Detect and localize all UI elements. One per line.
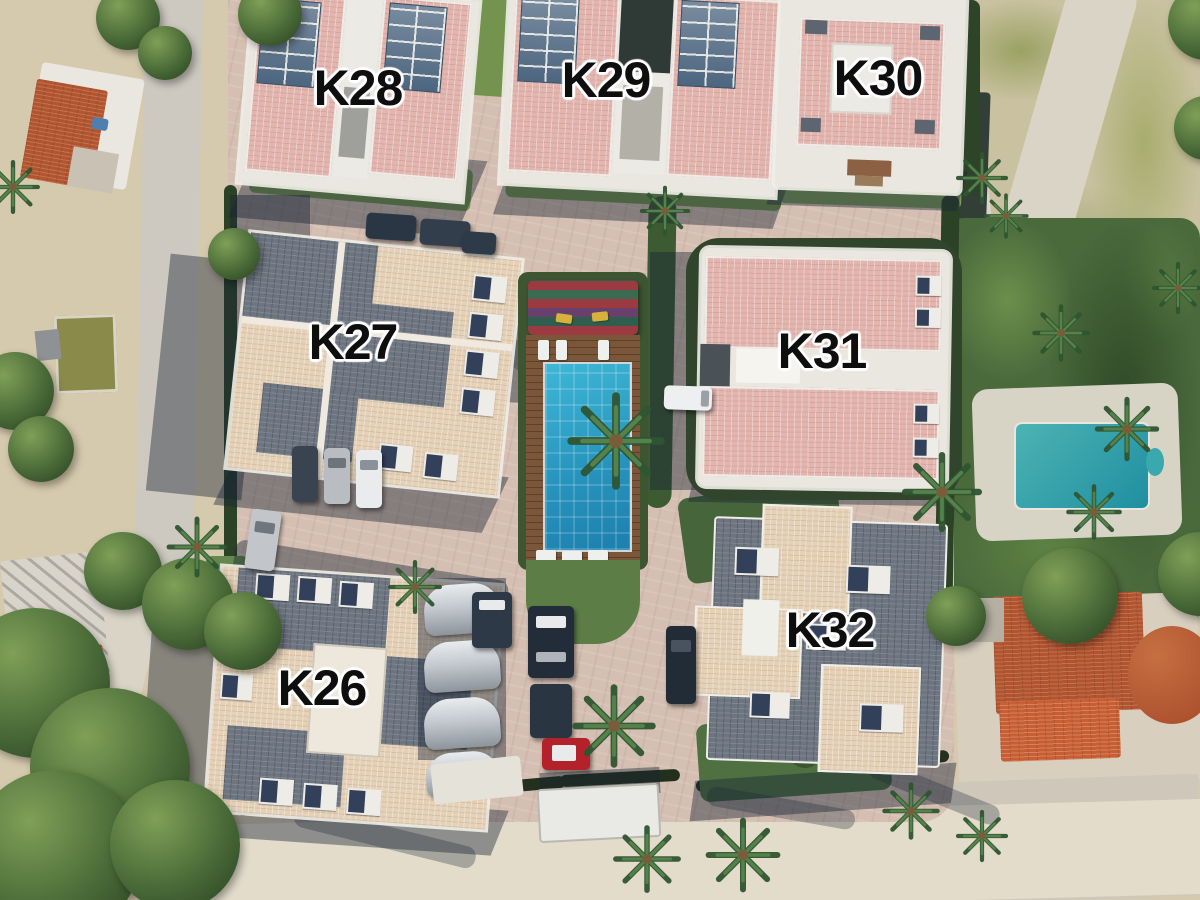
k27-dormer-2 — [467, 312, 504, 341]
tree — [138, 26, 192, 80]
car-dark-east-road — [666, 626, 696, 704]
k27-dormer-5 — [377, 443, 414, 472]
k32-skylight-2 — [846, 565, 891, 595]
car-silver-west — [324, 448, 350, 504]
k27-dormer-4 — [459, 387, 496, 416]
k32-skylight-3 — [749, 691, 790, 718]
pergola — [528, 280, 638, 335]
tree — [208, 228, 260, 280]
palm-tree — [566, 678, 662, 774]
k26-dormer-2 — [297, 576, 333, 604]
palm-tree — [560, 385, 672, 497]
k29-solar-panels-right — [677, 0, 739, 89]
k30-entrance-steps — [855, 176, 883, 187]
neighbor-house-topleft-pool-float — [91, 117, 109, 132]
palm-tree — [700, 812, 786, 898]
car-dark-center-1 — [472, 592, 512, 648]
suv-dark-center — [528, 606, 574, 678]
building-label-k32: K32 — [786, 601, 875, 659]
palm-tree — [980, 190, 1032, 242]
neighbor-house-topleft-patio — [67, 146, 119, 193]
k31-dormer-1 — [915, 276, 941, 296]
carport-roof-3 — [422, 695, 501, 750]
palm-tree — [896, 446, 988, 538]
building-label-k26: K26 — [278, 659, 367, 717]
tree — [8, 416, 74, 482]
pergola-lounger-2 — [592, 311, 609, 322]
building-label-k27: K27 — [309, 313, 398, 371]
palm-tree — [384, 556, 446, 618]
k32-skylight-1 — [734, 547, 779, 577]
tree — [204, 592, 282, 670]
k30-entrance-porch — [847, 159, 892, 177]
k30-vent-1 — [805, 20, 827, 35]
car-dark-row-1 — [365, 212, 417, 241]
lounger-top-2 — [556, 340, 567, 360]
palm-tree — [636, 182, 694, 240]
grey-shed — [34, 329, 61, 361]
k30-vent-4 — [915, 120, 935, 135]
k32-center-court — [741, 599, 779, 656]
k31-dormer-2 — [915, 308, 941, 328]
palm-tree — [878, 778, 944, 844]
tree — [1022, 548, 1118, 644]
k26-dormer-5 — [220, 673, 254, 701]
palm-tree — [162, 512, 232, 582]
k31-mid-shadow — [700, 344, 731, 387]
k26-dormer-3 — [338, 581, 374, 609]
palm-tree — [1062, 480, 1126, 544]
car-white-west — [356, 450, 382, 508]
k26-dormer-7 — [302, 783, 338, 811]
k30-vent-3 — [801, 118, 821, 133]
k27-dormer-1 — [471, 274, 508, 303]
k27-dormer-3 — [463, 350, 500, 379]
palm-tree — [952, 806, 1012, 866]
palm-tree — [0, 156, 44, 218]
building-label-k31: K31 — [778, 322, 867, 380]
lounger-top-1 — [538, 340, 549, 360]
tree — [110, 780, 240, 900]
aerial-site-plan: K28 K29 K30 K27 K31 K26 K32 — [0, 0, 1200, 900]
green-roof-shed — [54, 314, 119, 394]
building-label-k30: K30 — [834, 49, 923, 107]
palm-tree — [608, 820, 686, 898]
palm-tree — [1148, 258, 1200, 318]
k26-dormer-6 — [258, 778, 294, 806]
k31-dormer-3 — [913, 404, 939, 424]
car-dark-row-3 — [461, 231, 496, 255]
k26-dormer-8 — [346, 788, 382, 816]
lounger-top-3 — [598, 340, 609, 360]
car-dark-west — [292, 446, 318, 502]
k27-dormer-6 — [422, 452, 459, 481]
palm-tree — [1028, 300, 1094, 366]
palm-tree — [1090, 392, 1164, 466]
building-label-k28: K28 — [314, 59, 403, 117]
tree — [926, 586, 986, 646]
k32-skylight-4 — [859, 703, 904, 733]
neighbor-house-bottomright-roof-lower — [999, 698, 1121, 762]
k30-vent-2 — [920, 26, 940, 41]
building-label-k29: K29 — [562, 51, 651, 109]
